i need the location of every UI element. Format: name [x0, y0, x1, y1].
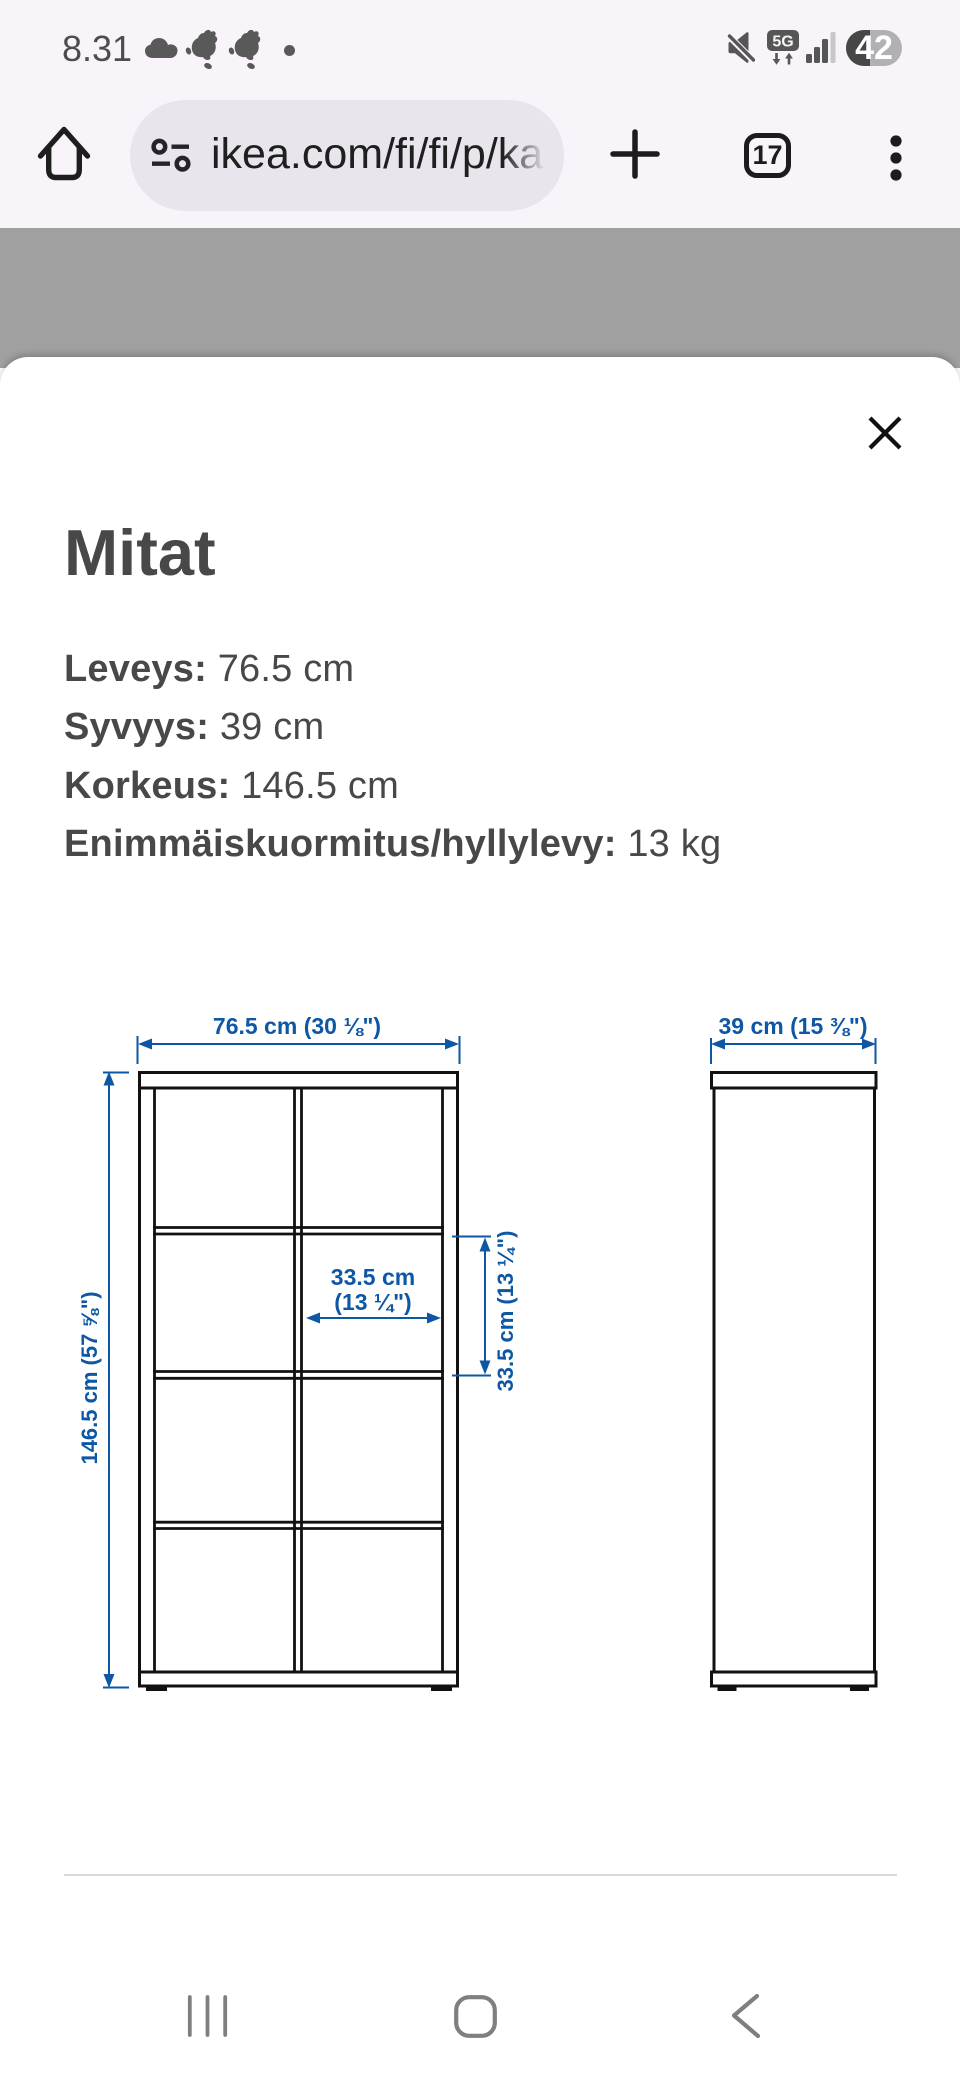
- svg-text:33.5 cm (13 ¼"): 33.5 cm (13 ¼"): [493, 1231, 518, 1392]
- svg-text:(13 ¼"): (13 ¼"): [334, 1289, 411, 1315]
- svg-text:76.5 cm (30 ⅛"): 76.5 cm (30 ⅛"): [213, 1013, 381, 1039]
- svg-text:39 cm (15 ⅜"): 39 cm (15 ⅜"): [719, 1013, 868, 1039]
- svg-text:33.5 cm: 33.5 cm: [331, 1264, 415, 1290]
- svg-text:146.5 cm (57 ⅝"): 146.5 cm (57 ⅝"): [77, 1291, 102, 1464]
- svg-text:5G: 5G: [772, 34, 793, 51]
